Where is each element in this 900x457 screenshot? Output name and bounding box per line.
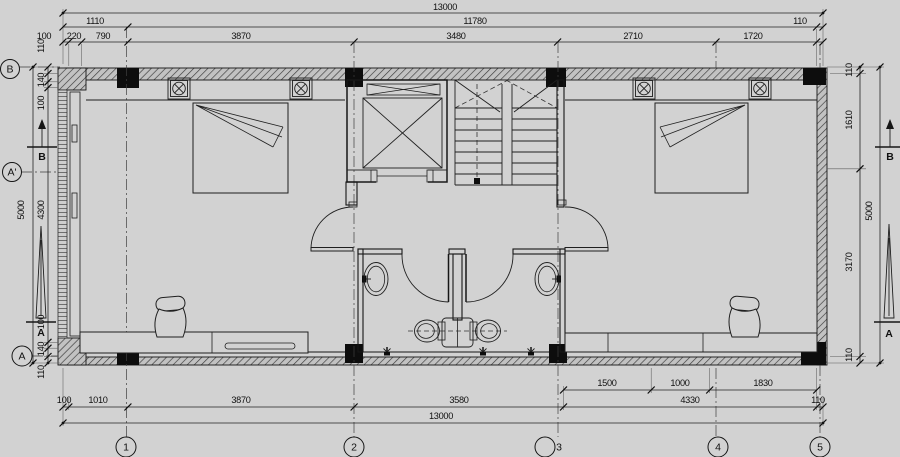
dim-label: 1720 [743, 31, 762, 41]
dimensions-top: 13000 1110 11780 110 100 220 790 3870 34… [37, 2, 807, 41]
staircase [455, 80, 564, 207]
dim-label: 100 [36, 96, 46, 111]
dim-label: 220 [67, 31, 82, 41]
dim-label: 3870 [231, 395, 250, 405]
door-swing [311, 207, 353, 249]
dim-label: 5000 [864, 201, 874, 220]
section-label: A [885, 328, 893, 340]
door-swing [565, 207, 608, 249]
dim-label: 5000 [16, 200, 26, 219]
dim-dot [62, 12, 65, 15]
dim-label: 2710 [623, 31, 642, 41]
section-label: B [886, 151, 894, 163]
window-left [58, 90, 67, 338]
dim-label: 140 [36, 342, 46, 357]
grid-bubble-label: B [6, 64, 13, 76]
grid-bubble-label: A [18, 351, 25, 363]
wall-bottom [65, 357, 826, 365]
dim-label: 1000 [670, 378, 689, 388]
bedroom-left [70, 78, 345, 353]
section-marker-a-left: A [26, 226, 56, 339]
dim-label: 110 [36, 365, 46, 379]
dim-label: 110 [844, 348, 854, 362]
desk-counter [565, 333, 817, 352]
grid-bubble-label: 1 [123, 442, 129, 454]
section-marker-b-right: B [875, 119, 900, 163]
dim-dot [879, 66, 882, 69]
dim-label: 1110 [86, 16, 104, 26]
dim-dot [822, 422, 825, 425]
wall-right [817, 68, 827, 365]
grid-bubble-label: A' [7, 167, 16, 179]
dim-label: 3870 [231, 31, 250, 41]
column [546, 68, 566, 87]
dim-label: 110 [36, 39, 46, 53]
dim-label: 1610 [844, 110, 854, 129]
column [803, 68, 826, 85]
floor-plan-page: 13000 1110 11780 110 100 220 790 3870 34… [0, 0, 900, 457]
grid-bubble-3 [535, 437, 555, 457]
dim-label: 4300 [36, 200, 46, 219]
section-marker-a-right: A [874, 224, 900, 340]
section-label: B [38, 151, 46, 163]
grid-bubble-label: 4 [715, 442, 721, 454]
bath-partition-wall [453, 254, 462, 320]
grid-bubble-label: 2 [351, 442, 357, 454]
door-swing [466, 254, 513, 302]
dim-label: 13000 [433, 2, 457, 12]
grid-bubble-label: 3 [556, 442, 562, 454]
dim-dot [32, 362, 35, 365]
dim-dot [879, 362, 882, 365]
door-swing [402, 254, 449, 302]
dim-label: 100 [57, 395, 72, 405]
dim-dot [859, 66, 862, 69]
door-leaf [311, 248, 353, 252]
desk-counter [80, 332, 308, 353]
dim-label: 140 [36, 73, 46, 88]
dim-label: 790 [96, 31, 111, 41]
dim-label: 3480 [446, 31, 465, 41]
wall-left-top-corner [58, 68, 86, 90]
grid-lines [19, 27, 820, 437]
section-label: A [37, 327, 45, 339]
dim-label: 11780 [463, 16, 487, 26]
dim-dot [62, 422, 65, 425]
dim-label: 110 [844, 63, 854, 77]
column [117, 68, 139, 88]
dim-label: 3170 [844, 252, 854, 271]
bedroom-right [565, 78, 817, 352]
dim-label: 1830 [753, 378, 772, 388]
dim-label: 1010 [88, 395, 107, 405]
grid-bubble-label: 5 [817, 442, 823, 454]
dim-label: 13000 [429, 411, 453, 421]
floor-plan-canvas: 13000 1110 11780 110 100 220 790 3870 34… [0, 0, 900, 457]
dim-label: 110 [793, 16, 807, 26]
dim-dot [32, 66, 35, 69]
dim-dot [47, 362, 50, 365]
section-marker-b-left: B [27, 119, 57, 163]
bathrooms [358, 249, 565, 356]
dim-label: 110 [811, 395, 825, 405]
dim-label: 4330 [680, 395, 699, 405]
wardrobe [70, 92, 80, 336]
dim-dot [822, 12, 825, 15]
elevator-shaft [347, 80, 447, 183]
dim-label: 3580 [449, 395, 468, 405]
dimensions-right: 5000 110 1610 3170 110 [844, 63, 874, 362]
dim-label: 1500 [597, 378, 616, 388]
door-leaf [565, 248, 608, 252]
